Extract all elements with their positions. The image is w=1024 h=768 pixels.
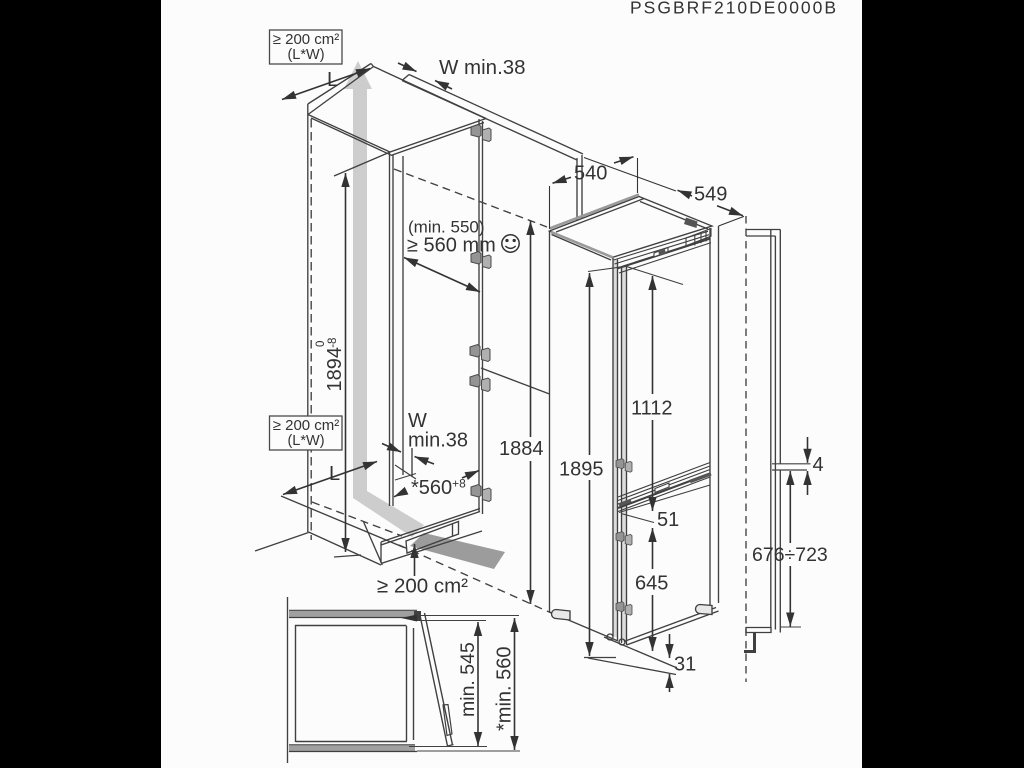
svg-text:18940-8: 18940-8	[315, 338, 346, 392]
svg-text:1895: 1895	[559, 459, 604, 481]
svg-text:31: 31	[674, 654, 696, 676]
svg-text:1884: 1884	[499, 438, 544, 460]
svg-text:≥ 200 cm²: ≥ 200 cm²	[273, 417, 340, 434]
svg-text:≥ 560 mm: ≥ 560 mm	[407, 235, 496, 257]
svg-text:≥ 200 cm²: ≥ 200 cm²	[377, 575, 468, 598]
svg-text:4: 4	[813, 454, 824, 476]
svg-text:1112: 1112	[631, 398, 673, 420]
svg-text:549: 549	[694, 184, 727, 206]
svg-text:(L*W): (L*W)	[287, 433, 324, 449]
svg-text:W min.38: W min.38	[439, 56, 526, 79]
svg-text:676÷723: 676÷723	[752, 544, 828, 566]
svg-text:min. 545: min. 545	[457, 642, 479, 717]
svg-text:L: L	[329, 463, 340, 485]
svg-text:*min. 560: *min. 560	[494, 647, 516, 732]
svg-text:PSGBRF210DE0000B: PSGBRF210DE0000B	[630, 0, 838, 18]
svg-text:≥ 200 cm²: ≥ 200 cm²	[273, 31, 340, 48]
svg-text:645: 645	[635, 573, 668, 595]
svg-text:540: 540	[574, 163, 607, 185]
svg-text:*560+8: *560+8	[411, 477, 466, 500]
svg-text:51: 51	[657, 509, 679, 531]
svg-text:(L*W): (L*W)	[287, 47, 324, 63]
svg-text:min.38: min.38	[408, 430, 468, 452]
